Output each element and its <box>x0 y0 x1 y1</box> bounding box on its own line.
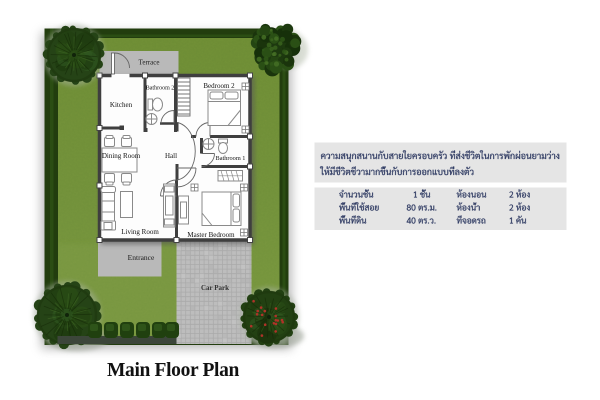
svg-text:Terrace: Terrace <box>139 59 160 67</box>
svg-text:Bathroom 1: Bathroom 1 <box>216 155 246 162</box>
svg-text:Kitchen: Kitchen <box>110 101 133 109</box>
svg-text:Bathroom 2: Bathroom 2 <box>146 86 175 92</box>
svg-text:Main Floor Plan: Main Floor Plan <box>107 360 239 381</box>
svg-text:Dining Room: Dining Room <box>102 152 141 160</box>
svg-text:Car Park: Car Park <box>201 284 229 292</box>
svg-text:Entrance: Entrance <box>128 253 155 262</box>
svg-text:Master Bedroom: Master Bedroom <box>187 231 235 239</box>
svg-text:Bedroom 2: Bedroom 2 <box>203 82 235 90</box>
svg-text:Living Room: Living Room <box>121 228 159 236</box>
svg-text:Hall: Hall <box>165 152 177 160</box>
